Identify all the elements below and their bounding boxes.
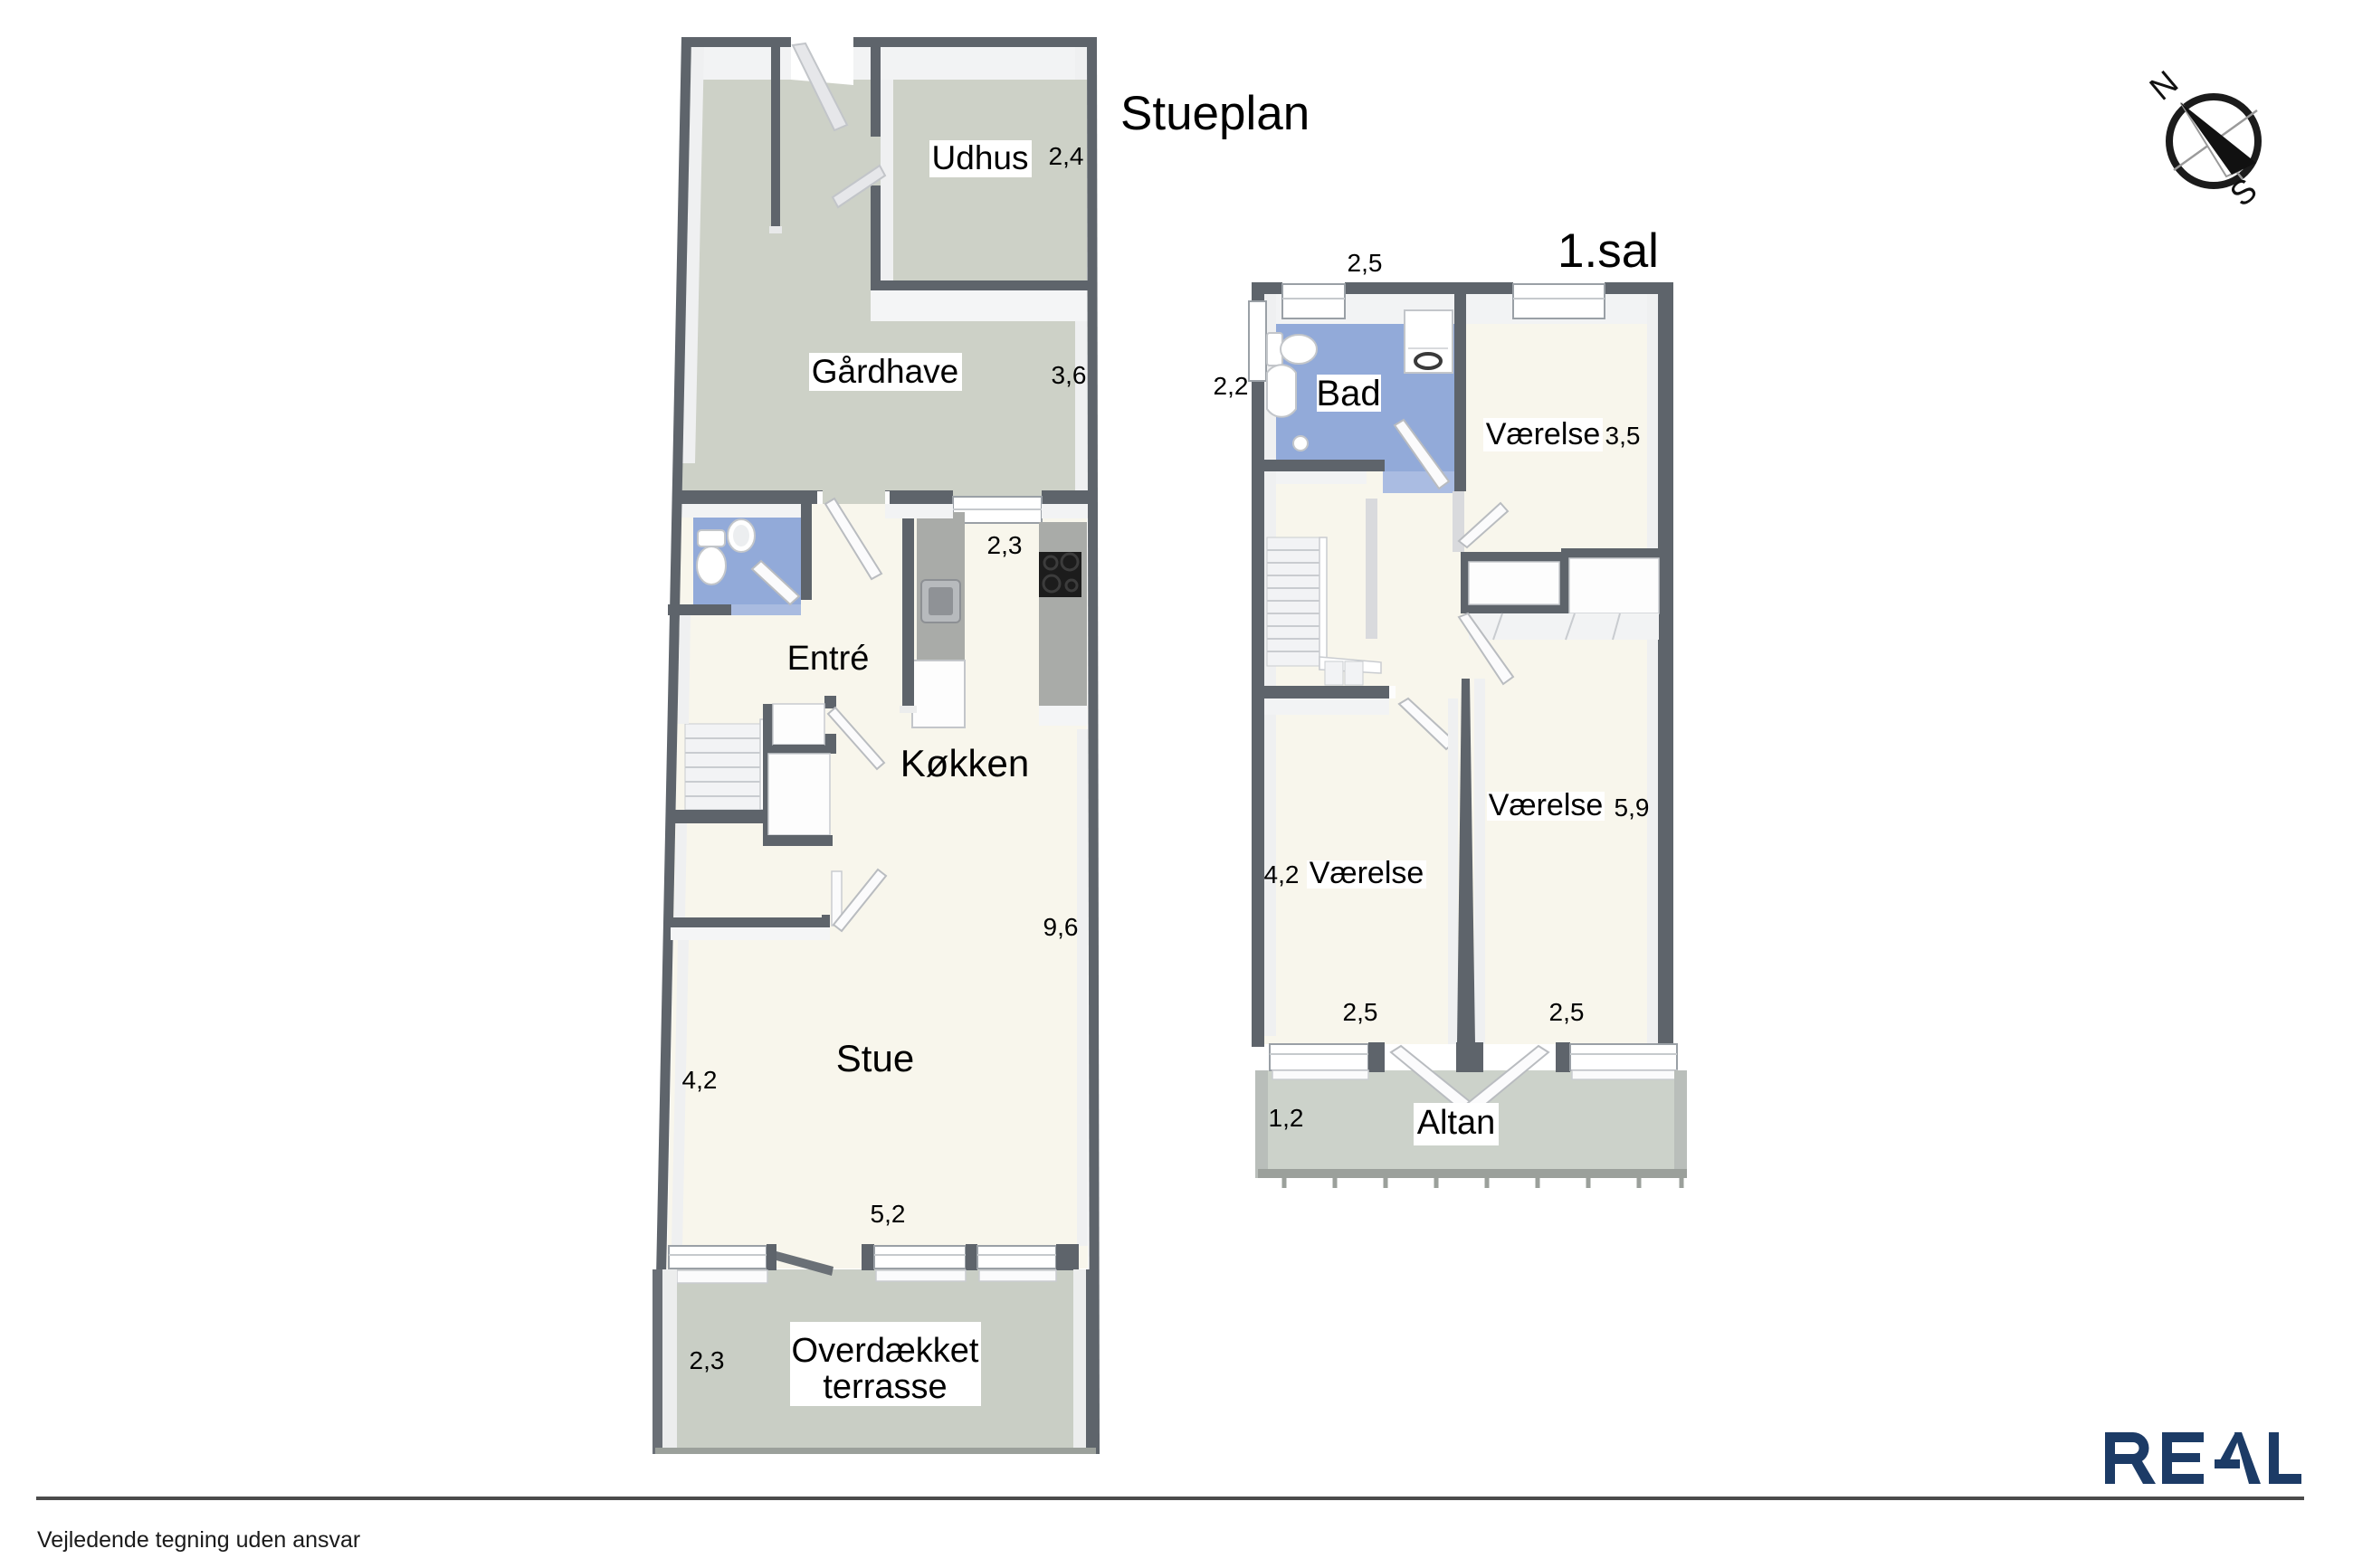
svg-text:Køkken: Køkken — [900, 742, 1029, 784]
svg-text:4,2: 4,2 — [1264, 860, 1300, 889]
svg-text:2,5: 2,5 — [1549, 998, 1585, 1026]
svg-text:3,6: 3,6 — [1052, 361, 1087, 389]
svg-text:4,2: 4,2 — [682, 1066, 718, 1094]
svg-text:Værelse: Værelse — [1310, 856, 1424, 890]
svg-text:2,5: 2,5 — [1348, 249, 1383, 277]
svg-text:Entré: Entré — [787, 640, 870, 678]
svg-text:Overdækket: Overdækket — [792, 1332, 979, 1370]
svg-text:2,5: 2,5 — [1343, 998, 1378, 1026]
svg-text:Værelse: Værelse — [1489, 788, 1604, 822]
svg-text:9,6: 9,6 — [1043, 913, 1079, 941]
svg-text:Altan: Altan — [1417, 1104, 1496, 1142]
svg-text:5,9: 5,9 — [1615, 794, 1650, 822]
svg-text:1.sal: 1.sal — [1558, 224, 1659, 278]
svg-text:3,5: 3,5 — [1605, 422, 1641, 450]
svg-text:Bad: Bad — [1316, 374, 1380, 413]
svg-text:Værelse: Værelse — [1486, 417, 1601, 451]
svg-text:Stueplan: Stueplan — [1120, 87, 1310, 140]
svg-text:1,2: 1,2 — [1269, 1104, 1304, 1132]
svg-text:5,2: 5,2 — [871, 1200, 906, 1228]
svg-text:terrasse: terrasse — [823, 1368, 947, 1406]
svg-text:Vejledende tegning uden ansvar: Vejledende tegning uden ansvar — [37, 1527, 360, 1553]
svg-text:Gårdhave: Gårdhave — [812, 353, 959, 390]
svg-text:2,2: 2,2 — [1214, 372, 1249, 400]
svg-text:2,3: 2,3 — [987, 531, 1023, 559]
svg-text:2,3: 2,3 — [690, 1346, 725, 1374]
svg-text:Udhus: Udhus — [932, 139, 1029, 176]
svg-text:Stue: Stue — [836, 1037, 914, 1079]
svg-text:2,4: 2,4 — [1049, 142, 1084, 170]
